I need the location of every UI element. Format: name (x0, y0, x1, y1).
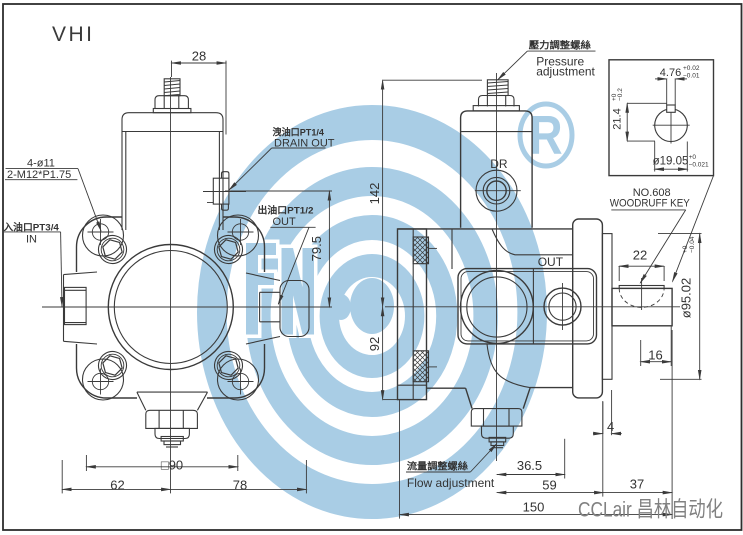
svg-text:21.4: 21.4 (612, 108, 624, 129)
svg-text:4-ø11: 4-ø11 (27, 158, 55, 170)
svg-text:16: 16 (648, 348, 662, 363)
svg-text:DR: DR (490, 157, 508, 171)
svg-text:壓力調整螺絲: 壓力調整螺絲 (529, 40, 592, 52)
svg-text:79.5: 79.5 (309, 236, 324, 261)
svg-text:DRAIN OUT: DRAIN OUT (274, 138, 335, 150)
svg-text:VHI: VHI (52, 23, 95, 46)
svg-text:入油口PT3/4: 入油口PT3/4 (2, 222, 59, 234)
svg-text:WOODRUFF KEY: WOODRUFF KEY (610, 198, 691, 210)
svg-text:−0.01: −0.01 (683, 73, 700, 80)
svg-text:OUT: OUT (273, 216, 297, 228)
svg-text:59: 59 (542, 478, 556, 493)
svg-text:+0: +0 (689, 154, 697, 161)
svg-text:ø19.05: ø19.05 (653, 156, 689, 168)
svg-text:4.76: 4.76 (660, 67, 681, 79)
svg-text:+0: +0 (682, 245, 689, 253)
svg-text:−0.021: −0.021 (689, 162, 709, 169)
svg-text:78: 78 (233, 478, 247, 493)
svg-text:+0.02: +0.02 (683, 65, 700, 72)
svg-text:92: 92 (367, 337, 382, 351)
svg-text:2-M12*P1.75: 2-M12*P1.75 (7, 169, 71, 181)
svg-text:IN: IN (26, 234, 37, 246)
svg-text:CCLair 昌林自动化: CCLair 昌林自动化 (578, 498, 723, 522)
svg-text:□90: □90 (161, 458, 183, 473)
svg-text:adjustment: adjustment (536, 65, 595, 79)
svg-text:ø95.02: ø95.02 (679, 278, 694, 318)
svg-text:流量調整螺絲: 流量調整螺絲 (407, 461, 469, 473)
svg-text:Flow adjustment: Flow adjustment (407, 476, 495, 490)
svg-text:R: R (529, 104, 562, 166)
svg-text:−0.2: −0.2 (617, 88, 624, 101)
svg-text:142: 142 (367, 183, 382, 205)
svg-text:28: 28 (192, 49, 206, 64)
svg-text:37: 37 (630, 477, 644, 492)
svg-text:62: 62 (110, 478, 124, 493)
svg-text:150: 150 (523, 500, 545, 515)
svg-text:OUT: OUT (538, 255, 564, 269)
svg-text:36.5: 36.5 (517, 458, 542, 473)
svg-text:−0.04: −0.04 (689, 236, 696, 253)
svg-text:4: 4 (607, 419, 614, 434)
svg-text:22: 22 (633, 248, 647, 263)
svg-text:出油口PT1/2: 出油口PT1/2 (258, 205, 314, 217)
